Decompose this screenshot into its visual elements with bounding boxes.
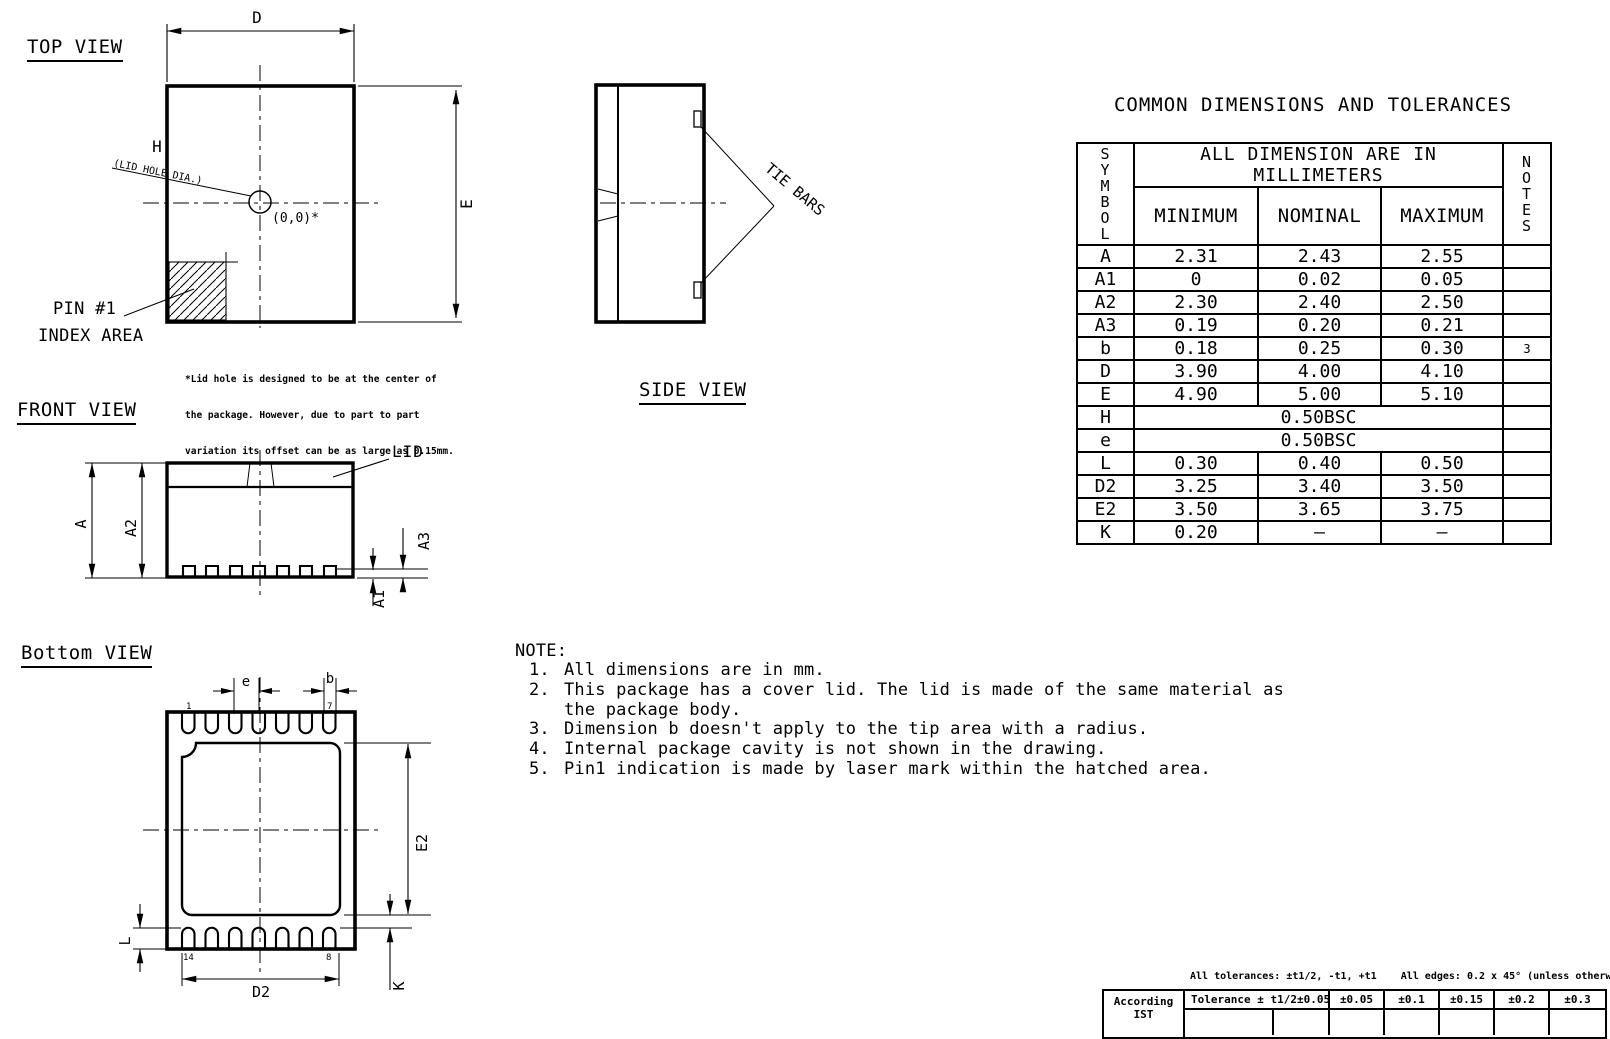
front-view-title: FRONT VIEW	[17, 399, 136, 425]
dim-h-label: H	[152, 137, 162, 156]
dim-note	[1503, 314, 1551, 337]
dim-d-label: D	[252, 8, 262, 27]
dim-max: 0.30	[1381, 337, 1503, 360]
top-view-title: TOP VIEW	[27, 36, 123, 62]
tolerance-value: ±0.3	[1550, 991, 1605, 1008]
dim-b-label: b	[326, 671, 334, 687]
tolerance-according-line2: IST	[1104, 1008, 1183, 1021]
notes-header-cell: NOTES	[1503, 143, 1551, 245]
dim-l-label: L	[116, 936, 134, 945]
dim-symbol: E	[1077, 383, 1134, 406]
dim-min: 0.30	[1134, 452, 1258, 475]
bottom-view: e b 1 7 14 8 E2 L D2 K	[116, 671, 431, 1001]
dim-row-b: b 0.18 0.25 0.30 3	[1077, 337, 1551, 360]
tolerance-table-main: Tolerance ± t1/2 ±0.05 ±0.05 ±0.1 ±0.15 …	[1185, 991, 1605, 1037]
note-item-continuation: the package body.	[515, 701, 1284, 721]
dim-a1-label: A1	[370, 590, 388, 608]
dim-note	[1503, 429, 1551, 452]
dim-a-label: A	[72, 519, 90, 528]
notes-heading: NOTE:	[515, 641, 1284, 661]
dim-row-E: E 4.90 5.00 5.10	[1077, 383, 1551, 406]
note-number: 1.	[529, 661, 551, 681]
dim-k-label: K	[390, 981, 408, 990]
side-view: TIE BARS	[596, 85, 828, 322]
origin-label: (0,0)*	[272, 211, 319, 226]
tolerance-value: ±0.05	[1297, 993, 1330, 1006]
dim-symbol: D	[1077, 360, 1134, 383]
dim-symbol: L	[1077, 452, 1134, 475]
tolerance-row-label-cell: Tolerance ± t1/2 ±0.05	[1185, 991, 1330, 1008]
lid-hole-footnote: *Lid hole is designed to be at the cente…	[185, 350, 454, 470]
dim-a2-label: A2	[122, 519, 140, 537]
tolerance-row-label: Tolerance ± t1/2	[1191, 993, 1297, 1006]
dim-min: 4.90	[1134, 383, 1258, 406]
dim-max: 2.55	[1381, 245, 1503, 268]
dim-span-value: 0.50BSC	[1134, 429, 1503, 452]
dim-symbol: b	[1077, 337, 1134, 360]
note-item: 5. Pin1 indication is made by laser mark…	[515, 760, 1284, 780]
pin-number-1: 1	[186, 702, 191, 712]
dim-nom: 0.02	[1258, 268, 1381, 291]
dim-min: 2.30	[1134, 291, 1258, 314]
tolerance-note: All tolerances: ±t1/2, -t1, +t1 All edge…	[1190, 971, 1610, 982]
bottom-view-title: Bottom VIEW	[21, 642, 152, 668]
dim-note	[1503, 521, 1551, 544]
dim-symbol: A1	[1077, 268, 1134, 291]
pin-number-7: 7	[327, 702, 332, 712]
dim-e-label: E	[457, 199, 476, 209]
dim-span-value: 0.50BSC	[1134, 406, 1503, 429]
lid-hole-footnote-line1: *Lid hole is designed to be at the cente…	[185, 374, 454, 386]
side-view-title: SIDE VIEW	[639, 379, 746, 405]
exposed-pad-outline	[182, 743, 340, 915]
pin1-index-hatch	[169, 262, 226, 320]
max-header-cell: MAXIMUM	[1381, 187, 1503, 245]
dim-max: 3.50	[1381, 475, 1503, 498]
dim-nom: 4.00	[1258, 360, 1381, 383]
tolerance-value: ±0.1	[1385, 991, 1440, 1008]
dim-nom: 0.25	[1258, 337, 1381, 360]
dim-min: 0	[1134, 268, 1258, 291]
min-header-cell: MINIMUM	[1134, 187, 1258, 245]
tie-bar-top	[694, 111, 701, 127]
note-text: Pin1 indication is made by laser mark wi…	[564, 760, 1211, 780]
note-text: the package body.	[564, 701, 741, 721]
tolerance-table: According IST Tolerance ± t1/2 ±0.05 ±0.…	[1102, 989, 1607, 1039]
tolerance-according-line1: According	[1104, 995, 1183, 1008]
dim-row-H: H 0.50BSC	[1077, 406, 1551, 429]
dim-row-A1: A1 0 0.02 0.05	[1077, 268, 1551, 291]
lid-hole-dia-label: (LID HOLE DIA.)	[112, 158, 203, 187]
bottom-view-top-pins	[182, 712, 336, 733]
dim-a3-label: A3	[415, 532, 433, 550]
dim-min: 3.90	[1134, 360, 1258, 383]
dim-nom: 3.65	[1258, 498, 1381, 521]
units-header-cell: ALL DIMENSION ARE IN MILLIMETERS	[1134, 143, 1503, 187]
dim-nom: 0.20	[1258, 314, 1381, 337]
tolerance-value: ±0.2	[1495, 991, 1550, 1008]
dim-nom: 3.40	[1258, 475, 1381, 498]
note-item: 3. Dimension b doesn't apply to the tip …	[515, 720, 1284, 740]
dim-note	[1503, 498, 1551, 521]
lid-hole-footnote-line2: the package. However, due to part to par…	[185, 410, 454, 422]
tolerance-value: ±0.15	[1440, 991, 1495, 1008]
dim-symbol: A	[1077, 245, 1134, 268]
dim-max: 3.75	[1381, 498, 1503, 521]
dim-symbol: A2	[1077, 291, 1134, 314]
dim-max: 0.50	[1381, 452, 1503, 475]
dim-nom: 0.40	[1258, 452, 1381, 475]
dimensions-table: SYMBOL ALL DIMENSION ARE IN MILLIMETERS …	[1076, 142, 1552, 545]
lid-hole-side-lines	[598, 189, 618, 221]
note-text: All dimensions are in mm.	[564, 661, 825, 681]
dim-max: 0.05	[1381, 268, 1503, 291]
dim-row-A3: A3 0.19 0.20 0.21	[1077, 314, 1551, 337]
pin1-label-line2: INDEX AREA	[38, 326, 143, 346]
dim-note	[1503, 291, 1551, 314]
pin-number-8: 8	[326, 953, 331, 963]
dim-note	[1503, 268, 1551, 291]
notes-block: NOTE: 1. All dimensions are in mm. 2. Th…	[515, 641, 1284, 780]
dim-max: 2.50	[1381, 291, 1503, 314]
note-item: 2. This package has a cover lid. The lid…	[515, 681, 1284, 701]
dim-min: 0.20	[1134, 521, 1258, 544]
symbol-header-cell: SYMBOL	[1077, 143, 1134, 245]
dim-table-title: COMMON DIMENSIONS AND TOLERANCES	[1076, 94, 1550, 116]
dim-symbol: e	[1077, 429, 1134, 452]
dim-row-D: D 3.90 4.00 4.10	[1077, 360, 1551, 383]
note-item: 4. Internal package cavity is not shown …	[515, 740, 1284, 760]
dim-symbol: D2	[1077, 475, 1134, 498]
tie-bars-leaders	[701, 127, 774, 283]
note-number: 3.	[529, 720, 551, 740]
dim-row-E2: E2 3.50 3.65 3.75	[1077, 498, 1551, 521]
dim-min: 3.50	[1134, 498, 1258, 521]
dim-max: 4.10	[1381, 360, 1503, 383]
dim-note	[1503, 360, 1551, 383]
nom-header-cell: NOMINAL	[1258, 187, 1381, 245]
note-number: 4.	[529, 740, 551, 760]
dim-symbol: A3	[1077, 314, 1134, 337]
note-number: 2.	[529, 681, 551, 701]
tolerance-according-cell: According IST	[1104, 991, 1185, 1037]
dim-e2-extension-lines	[344, 743, 431, 915]
bottom-view-bottom-pins	[182, 928, 336, 949]
dim-symbol: E2	[1077, 498, 1134, 521]
dim-row-A2: A2 2.30 2.40 2.50	[1077, 291, 1551, 314]
dim-min: 3.25	[1134, 475, 1258, 498]
tie-bars-label: TIE BARS	[761, 159, 828, 219]
dim-note	[1503, 475, 1551, 498]
pin-number-14: 14	[183, 953, 194, 963]
note-number	[529, 701, 551, 721]
dim-row-K: K 0.20 – –	[1077, 521, 1551, 544]
dim-note	[1503, 452, 1551, 475]
tolerance-value: ±0.05	[1330, 991, 1385, 1008]
dim-nom: 2.40	[1258, 291, 1381, 314]
dim-note	[1503, 245, 1551, 268]
tolerance-row-1: Tolerance ± t1/2 ±0.05 ±0.05 ±0.1 ±0.15 …	[1185, 991, 1605, 1010]
dim-l-extension-lines	[133, 928, 181, 949]
center-lines-bottom	[143, 677, 378, 974]
dim-note	[1503, 406, 1551, 429]
dim-row-L: L 0.30 0.40 0.50	[1077, 452, 1551, 475]
dim-nom: –	[1258, 521, 1381, 544]
lid-hole-footnote-line3: variation its offset can be as large as …	[185, 446, 454, 458]
dim-nom: 5.00	[1258, 383, 1381, 406]
dim-nom: 2.43	[1258, 245, 1381, 268]
dim-min: 0.19	[1134, 314, 1258, 337]
dim-note: 3	[1503, 337, 1551, 360]
note-number: 5.	[529, 760, 551, 780]
dim-d2-label: D2	[252, 983, 270, 1001]
note-text: Dimension b doesn't apply to the tip are…	[564, 720, 1148, 740]
dim-e-pitch-label: e	[242, 674, 250, 690]
dim-min: 0.18	[1134, 337, 1258, 360]
pin1-label-line1: PIN #1	[53, 299, 116, 319]
note-item: 1. All dimensions are in mm.	[515, 661, 1284, 681]
note-text: Internal package cavity is not shown in …	[564, 740, 1107, 760]
dim-e-extension-lines	[358, 86, 462, 322]
dim-note	[1503, 383, 1551, 406]
dim-row-A: A 2.31 2.43 2.55	[1077, 245, 1551, 268]
dim-max: 5.10	[1381, 383, 1503, 406]
dim-symbol: H	[1077, 406, 1134, 429]
dim-symbol: K	[1077, 521, 1134, 544]
dim-row-D2: D2 3.25 3.40 3.50	[1077, 475, 1551, 498]
dim-row-e: e 0.50BSC	[1077, 429, 1551, 452]
dim-max: 0.21	[1381, 314, 1503, 337]
tie-bar-bottom	[694, 282, 701, 298]
dim-min: 2.31	[1134, 245, 1258, 268]
note-text: This package has a cover lid. The lid is…	[564, 681, 1284, 701]
dim-max: –	[1381, 521, 1503, 544]
dim-e2-label: E2	[413, 834, 431, 852]
